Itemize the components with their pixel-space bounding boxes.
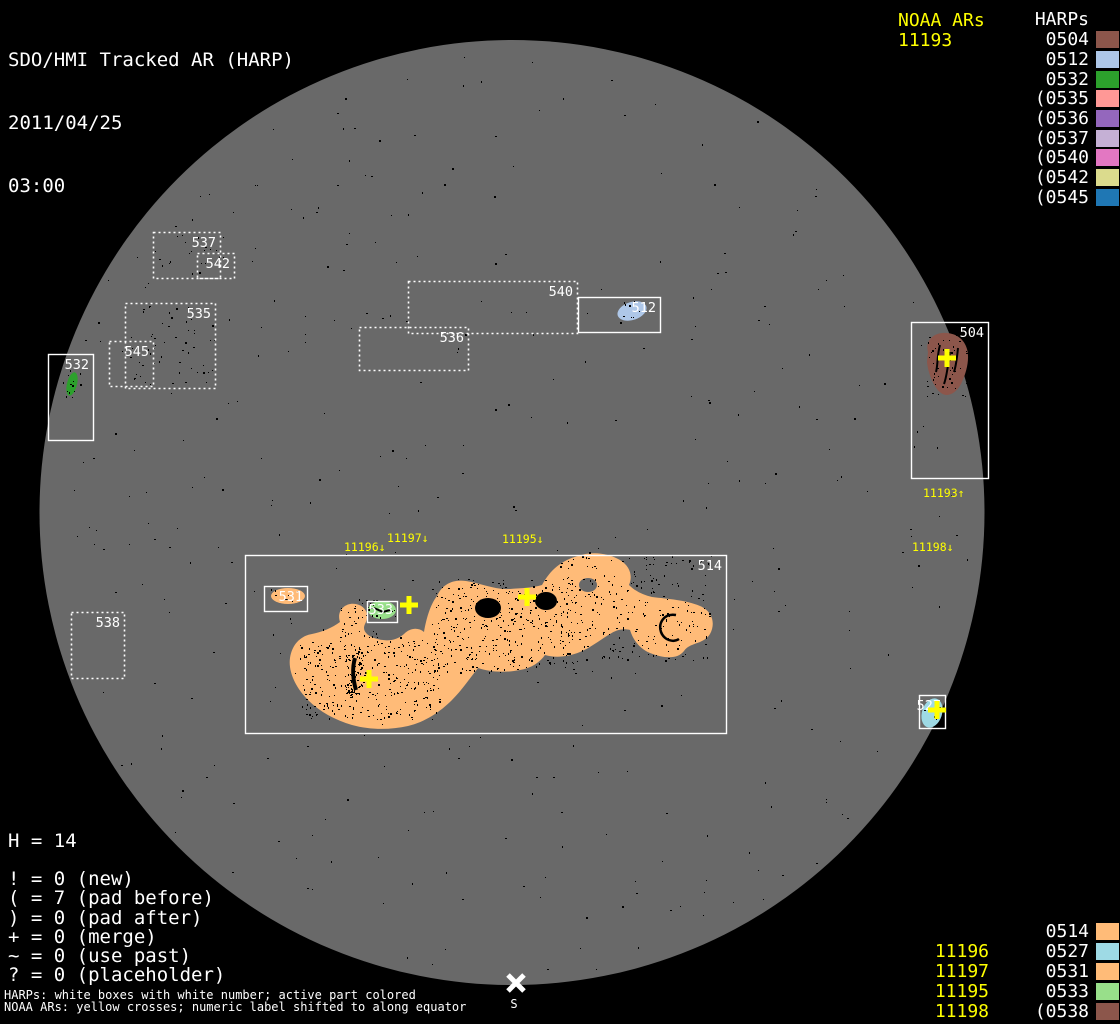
speckle xyxy=(586,659,588,661)
speckle xyxy=(518,591,519,592)
speckle xyxy=(966,351,967,352)
speckle xyxy=(232,872,234,873)
speckle xyxy=(568,609,569,610)
speckle xyxy=(514,618,515,619)
speckle xyxy=(497,668,498,670)
speckle xyxy=(170,261,171,263)
speckle xyxy=(381,713,382,714)
speckle xyxy=(436,712,437,714)
speckle xyxy=(535,607,537,609)
speckle xyxy=(303,217,304,219)
speckle xyxy=(725,272,727,273)
speckle xyxy=(352,717,353,719)
speckle xyxy=(371,176,373,177)
speckle xyxy=(340,637,342,638)
speckle xyxy=(711,289,712,290)
speckle xyxy=(678,607,679,608)
speckle xyxy=(309,648,310,650)
speckle xyxy=(508,625,509,626)
speckle xyxy=(634,643,635,644)
speckle xyxy=(389,678,390,680)
speckle xyxy=(142,584,143,585)
speckle xyxy=(352,696,353,698)
speckle xyxy=(655,104,656,105)
speckle xyxy=(395,616,396,617)
speckle xyxy=(621,599,623,600)
speckle xyxy=(318,666,319,667)
speckle xyxy=(409,714,410,716)
speckle xyxy=(427,697,428,699)
speckle xyxy=(482,615,483,616)
speckle xyxy=(444,637,446,639)
speckle xyxy=(690,632,691,633)
speckle xyxy=(310,707,311,709)
flag-count-line: + = 0 (merge) xyxy=(8,926,225,945)
speckle xyxy=(580,948,581,949)
speckle xyxy=(351,681,352,683)
speckle xyxy=(453,627,455,628)
speckle xyxy=(500,635,501,636)
speckle xyxy=(623,629,624,631)
speckle xyxy=(623,316,625,317)
speckle xyxy=(539,598,541,600)
speckle xyxy=(415,710,416,711)
speckle xyxy=(414,688,415,690)
speckle xyxy=(691,568,692,570)
speckle xyxy=(358,672,359,674)
speckle xyxy=(375,242,376,243)
speckle xyxy=(237,401,238,402)
speckle xyxy=(462,588,463,589)
footnote-line: NOAA ARs: yellow crosses; numeric label … xyxy=(4,1002,466,1014)
speckle xyxy=(345,635,346,636)
tracking-stats: H = 14 ! = 0 (new)( = 7 (pad before)) = … xyxy=(8,830,225,984)
harp-number: 0512 xyxy=(1046,49,1089,70)
speckle xyxy=(782,368,783,369)
speckle xyxy=(429,673,431,674)
speckle xyxy=(613,650,614,652)
speckle xyxy=(438,605,439,606)
speckle xyxy=(677,621,678,622)
speckle xyxy=(446,873,447,874)
speckle xyxy=(351,691,352,692)
speckle xyxy=(628,590,629,591)
speckle xyxy=(939,516,940,517)
speckle xyxy=(352,677,353,678)
speckle xyxy=(793,234,794,236)
speckle xyxy=(462,473,464,474)
speckle xyxy=(462,638,463,639)
speckle xyxy=(77,536,78,537)
speckle xyxy=(275,687,276,688)
speckle xyxy=(309,714,311,716)
speckle xyxy=(305,694,306,695)
speckle xyxy=(566,632,567,633)
speckle xyxy=(514,659,515,661)
speckle xyxy=(697,626,698,627)
speckle xyxy=(162,265,163,267)
speckle xyxy=(416,700,417,702)
noaa-label-11195: 11195↓ xyxy=(502,532,544,546)
harp-noaa-row: 111960527 xyxy=(879,941,1120,961)
speckle xyxy=(414,643,415,644)
speckle xyxy=(693,660,694,661)
speckle xyxy=(575,586,576,587)
speckle xyxy=(152,334,153,335)
speckle xyxy=(539,110,540,111)
speckle xyxy=(513,623,514,625)
speckle xyxy=(204,477,205,478)
speckle xyxy=(351,625,353,626)
speckle xyxy=(169,547,171,548)
speckle xyxy=(536,594,537,596)
noaa-ar-header: NOAA ARs xyxy=(898,11,985,31)
speckle xyxy=(651,580,653,582)
speckle xyxy=(471,584,473,586)
speckle xyxy=(465,619,466,620)
speckle xyxy=(436,593,437,594)
speckle xyxy=(345,700,346,701)
speckle xyxy=(185,342,187,344)
speckle xyxy=(354,666,356,667)
speckle xyxy=(622,906,624,908)
speckle xyxy=(349,660,350,661)
speckle xyxy=(570,584,571,585)
speckle xyxy=(319,663,320,664)
speckle xyxy=(426,682,427,683)
speckle xyxy=(492,582,494,583)
speckle xyxy=(645,605,646,606)
speckle xyxy=(414,641,415,642)
harp-row-0504: 0504 xyxy=(1035,30,1120,50)
speckle xyxy=(701,612,702,614)
speckle xyxy=(169,263,170,264)
speckle xyxy=(417,659,418,660)
speckle xyxy=(966,383,967,384)
speckle xyxy=(358,617,359,619)
speckle xyxy=(538,628,539,629)
speckle xyxy=(623,627,624,629)
speckle xyxy=(795,231,797,232)
speckle xyxy=(509,612,510,613)
speckle xyxy=(308,662,309,663)
speckle xyxy=(310,692,311,693)
speckle xyxy=(942,386,944,388)
speckle xyxy=(394,610,395,611)
speckle xyxy=(213,652,215,653)
speckle xyxy=(151,336,152,337)
harp-number: (0545 xyxy=(1035,187,1089,208)
speckle xyxy=(693,565,694,567)
speckle xyxy=(353,665,354,666)
harp-color-swatch xyxy=(1096,71,1119,88)
speckle xyxy=(394,655,395,657)
speckle xyxy=(531,610,532,611)
speckle xyxy=(610,594,611,595)
speckle xyxy=(327,266,329,268)
speckle xyxy=(396,262,397,263)
speckle xyxy=(816,189,817,190)
speckle xyxy=(416,664,417,665)
speckle xyxy=(451,626,452,627)
speckle xyxy=(466,658,467,659)
speckle xyxy=(405,702,406,703)
speckle xyxy=(454,630,455,632)
speckle xyxy=(580,614,582,615)
speckle xyxy=(460,672,462,674)
speckle xyxy=(192,487,193,488)
speckle xyxy=(567,616,568,618)
speckle xyxy=(361,667,363,669)
speckle xyxy=(194,330,195,331)
speckle xyxy=(255,248,256,249)
speckle xyxy=(495,263,497,265)
speckle xyxy=(504,638,506,640)
speckle xyxy=(432,624,433,625)
speckle xyxy=(307,888,309,889)
speckle xyxy=(547,969,549,970)
speckle xyxy=(581,620,582,621)
speckle xyxy=(545,622,546,624)
speckle xyxy=(388,656,389,658)
speckle xyxy=(438,663,439,664)
speckle xyxy=(955,388,956,389)
speckle xyxy=(618,656,619,658)
speckle xyxy=(327,647,329,649)
speckle xyxy=(385,695,386,696)
speckle xyxy=(288,351,289,352)
speckle xyxy=(676,563,677,564)
speckle xyxy=(420,660,422,662)
speckle xyxy=(511,759,513,761)
speckle xyxy=(353,707,354,709)
speckle xyxy=(928,342,929,344)
speckle xyxy=(306,694,307,695)
speckle xyxy=(651,592,652,594)
speckle xyxy=(653,578,654,579)
speckle xyxy=(589,552,591,554)
speckle xyxy=(333,705,334,706)
speckle xyxy=(383,672,385,673)
speckle xyxy=(953,346,954,348)
speckle xyxy=(956,535,958,536)
speckle xyxy=(312,679,313,681)
speckle xyxy=(563,579,564,580)
speckle xyxy=(414,682,415,683)
speckle xyxy=(645,602,646,603)
speckle xyxy=(396,713,398,714)
speckle xyxy=(315,692,317,694)
speckle xyxy=(290,618,291,620)
speckle xyxy=(521,613,522,614)
speckle xyxy=(709,616,711,617)
speckle xyxy=(531,657,532,658)
speckle xyxy=(437,644,438,645)
speckle xyxy=(66,396,67,398)
speckle xyxy=(446,872,447,873)
harp-box-label-512: 512 xyxy=(632,300,656,316)
speckle xyxy=(182,790,184,792)
speckle xyxy=(131,763,132,765)
speckle xyxy=(412,657,413,658)
speckle xyxy=(773,548,774,549)
speckle xyxy=(143,309,144,310)
speckle xyxy=(517,613,518,614)
speckle xyxy=(571,564,573,566)
speckle xyxy=(560,640,561,641)
speckle xyxy=(389,513,390,514)
speckle xyxy=(689,625,690,627)
speckle xyxy=(837,480,838,481)
speckle xyxy=(499,656,500,657)
speckle xyxy=(369,637,370,638)
speckle xyxy=(335,662,336,663)
speckle xyxy=(359,664,360,666)
speckle xyxy=(727,461,728,462)
speckle xyxy=(635,673,636,674)
speckle xyxy=(408,668,409,669)
speckle xyxy=(615,420,617,421)
speckle xyxy=(348,674,349,676)
speckle xyxy=(312,889,313,890)
speckle xyxy=(183,440,184,441)
speckle xyxy=(343,128,344,130)
speckle xyxy=(569,653,571,655)
speckle xyxy=(329,718,330,720)
speckle xyxy=(306,679,308,680)
speckle xyxy=(80,384,82,386)
speckle xyxy=(966,353,968,354)
speckle xyxy=(921,345,922,346)
speckle xyxy=(379,704,380,705)
speckle xyxy=(568,568,569,569)
speckle xyxy=(553,657,554,659)
speckle xyxy=(443,619,445,620)
speckle xyxy=(935,348,936,349)
speckle xyxy=(484,626,485,627)
speckle xyxy=(843,275,844,276)
speckle xyxy=(632,612,633,613)
speckle xyxy=(415,659,416,660)
harp-box-label-540: 540 xyxy=(549,284,573,300)
speckle xyxy=(799,406,800,408)
speckle xyxy=(486,646,487,647)
speckle xyxy=(341,705,342,707)
speckle xyxy=(327,675,329,676)
speckle xyxy=(656,655,657,656)
speckle xyxy=(644,615,645,617)
speckle xyxy=(336,568,337,569)
speckle xyxy=(451,655,452,657)
speckle xyxy=(615,537,616,538)
speckle xyxy=(511,312,512,313)
speckle xyxy=(668,651,669,652)
speckle xyxy=(146,492,147,493)
speckle xyxy=(621,586,622,587)
speckle xyxy=(509,591,510,592)
speckle xyxy=(380,719,382,720)
speckle xyxy=(481,301,482,302)
speckle xyxy=(601,597,602,598)
speckle xyxy=(359,647,360,649)
speckle xyxy=(563,98,564,100)
speckle xyxy=(500,672,501,673)
speckle xyxy=(541,637,542,639)
speckle xyxy=(943,349,944,351)
speckle xyxy=(585,361,586,363)
speckle xyxy=(372,636,373,638)
speckle xyxy=(485,625,487,626)
speckle xyxy=(609,634,610,635)
speckle xyxy=(914,446,915,448)
speckle xyxy=(168,326,170,327)
speckle xyxy=(348,687,349,688)
speckle xyxy=(337,705,338,707)
speckle xyxy=(433,665,434,666)
speckle xyxy=(553,625,554,626)
speckle xyxy=(367,652,369,653)
speckle xyxy=(378,705,379,707)
speckle xyxy=(636,585,638,587)
speckle xyxy=(203,365,204,366)
speckle xyxy=(706,638,707,639)
speckle xyxy=(437,679,438,680)
speckle xyxy=(648,636,649,637)
speckle xyxy=(311,688,313,690)
speckle xyxy=(460,649,462,651)
speckle xyxy=(513,662,515,663)
speckle xyxy=(572,602,573,603)
speckle xyxy=(734,599,735,600)
speckle xyxy=(705,585,706,586)
speckle xyxy=(611,560,612,561)
speckle xyxy=(611,80,613,81)
speckle xyxy=(433,677,434,678)
speckle xyxy=(638,640,639,641)
speckle xyxy=(547,660,549,661)
speckle xyxy=(345,715,346,717)
speckle xyxy=(164,599,165,600)
speckle xyxy=(476,658,477,659)
speckle xyxy=(550,631,552,632)
speckle xyxy=(691,596,692,597)
speckle xyxy=(638,947,639,949)
speckle xyxy=(355,687,356,688)
speckle xyxy=(505,838,507,839)
speckle xyxy=(145,382,146,383)
speckle xyxy=(451,629,452,630)
speckle xyxy=(384,717,385,719)
speckle xyxy=(490,603,491,604)
speckle xyxy=(364,675,366,676)
speckle xyxy=(566,603,568,605)
speckle xyxy=(656,579,657,581)
speckle xyxy=(353,668,354,669)
speckle xyxy=(478,584,479,585)
speckle xyxy=(308,654,310,655)
harp-box-label-514: 514 xyxy=(698,558,722,574)
speckle xyxy=(604,657,605,658)
speckle xyxy=(698,598,700,599)
speckle xyxy=(545,592,546,593)
speckle xyxy=(142,365,144,366)
speckle xyxy=(556,620,557,622)
speckle xyxy=(309,694,311,695)
speckle xyxy=(826,280,827,281)
speckle xyxy=(495,613,496,614)
speckle xyxy=(633,646,635,647)
speckle xyxy=(471,599,472,600)
